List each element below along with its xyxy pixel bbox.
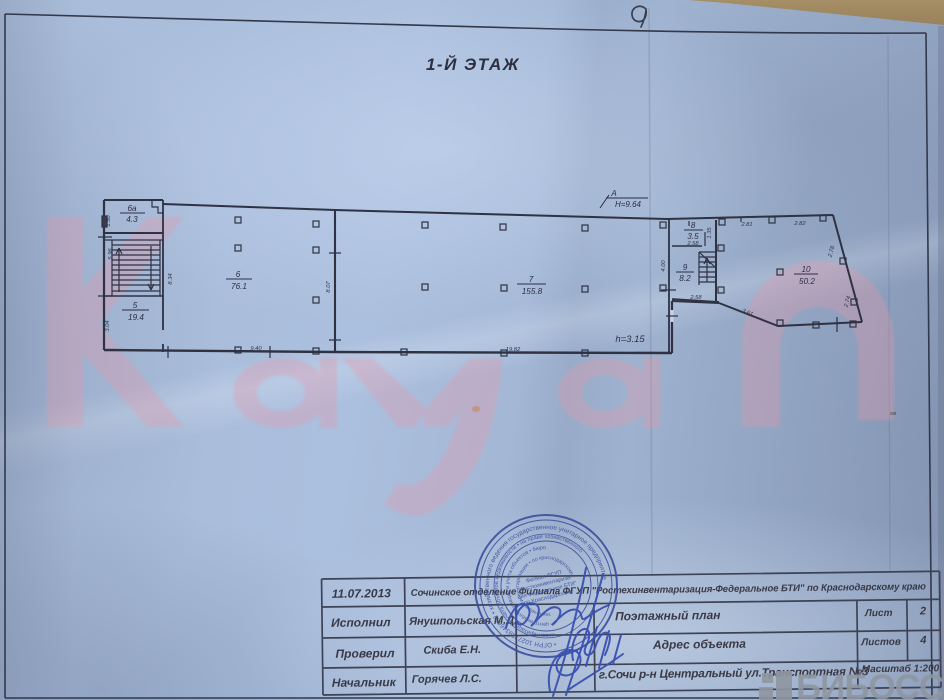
svg-text:Исполнил: Исполнил xyxy=(331,615,391,630)
svg-text:2.81: 2.81 xyxy=(740,222,752,228)
svg-text:2: 2 xyxy=(919,605,926,617)
svg-text:19.4: 19.4 xyxy=(128,313,144,322)
svg-text:Адрес объекта: Адрес объекта xyxy=(652,637,746,652)
svg-text:4: 4 xyxy=(919,634,926,646)
svg-text:Поэтажный план: Поэтажный план xyxy=(615,608,721,623)
svg-text:2.58: 2.58 xyxy=(689,295,702,301)
svg-text:50.2: 50.2 xyxy=(799,277,815,286)
svg-text:10: 10 xyxy=(801,265,811,274)
svg-text:8.34: 8.34 xyxy=(168,273,174,284)
svg-text:5.96: 5.96 xyxy=(108,248,114,260)
svg-text:4.3: 4.3 xyxy=(126,215,138,224)
svg-text:Проверил: Проверил xyxy=(335,646,395,661)
svg-text:2.58: 2.58 xyxy=(686,241,699,247)
svg-text:h=3.15: h=3.15 xyxy=(615,334,645,345)
svg-text:3.5: 3.5 xyxy=(687,232,699,241)
svg-text:5: 5 xyxy=(133,301,138,310)
svg-text:11.07.2013: 11.07.2013 xyxy=(332,586,392,601)
svg-text:1.35: 1.35 xyxy=(707,227,713,239)
svg-text:2.78: 2.78 xyxy=(827,245,836,259)
svg-text:9.40: 9.40 xyxy=(250,346,262,352)
svg-text:7: 7 xyxy=(529,275,534,284)
svg-text:155.8: 155.8 xyxy=(522,287,543,296)
svg-text:8.07: 8.07 xyxy=(326,281,332,293)
svg-text:Скиба Е.Н.: Скиба Е.Н. xyxy=(423,644,481,657)
svg-text:Начальник: Начальник xyxy=(332,675,397,690)
svg-text:1-Й ЭТАЖ: 1-Й ЭТАЖ xyxy=(426,54,520,74)
svg-text:2.82: 2.82 xyxy=(793,221,806,227)
svg-text:6а: 6а xyxy=(127,204,137,213)
svg-text:9: 9 xyxy=(683,263,688,272)
svg-text:8.2: 8.2 xyxy=(679,274,691,283)
svg-text:4.00: 4.00 xyxy=(661,260,667,272)
svg-text:8: 8 xyxy=(691,221,696,230)
svg-text:Лист: Лист xyxy=(864,608,893,619)
svg-text:19.82: 19.82 xyxy=(506,347,521,353)
svg-text:76.1: 76.1 xyxy=(231,282,247,291)
svg-text:1.50: 1.50 xyxy=(106,215,112,227)
svg-text:3.04: 3.04 xyxy=(105,320,111,331)
svg-text:H=9.64: H=9.64 xyxy=(615,200,642,209)
svg-text:Листов: Листов xyxy=(860,637,901,649)
svg-text:Горячев Л.С.: Горячев Л.С. xyxy=(412,673,482,686)
svg-text:6: 6 xyxy=(236,270,241,279)
svg-text:БИБОСС: БИБОСС xyxy=(796,668,944,700)
svg-text:А: А xyxy=(610,189,616,198)
